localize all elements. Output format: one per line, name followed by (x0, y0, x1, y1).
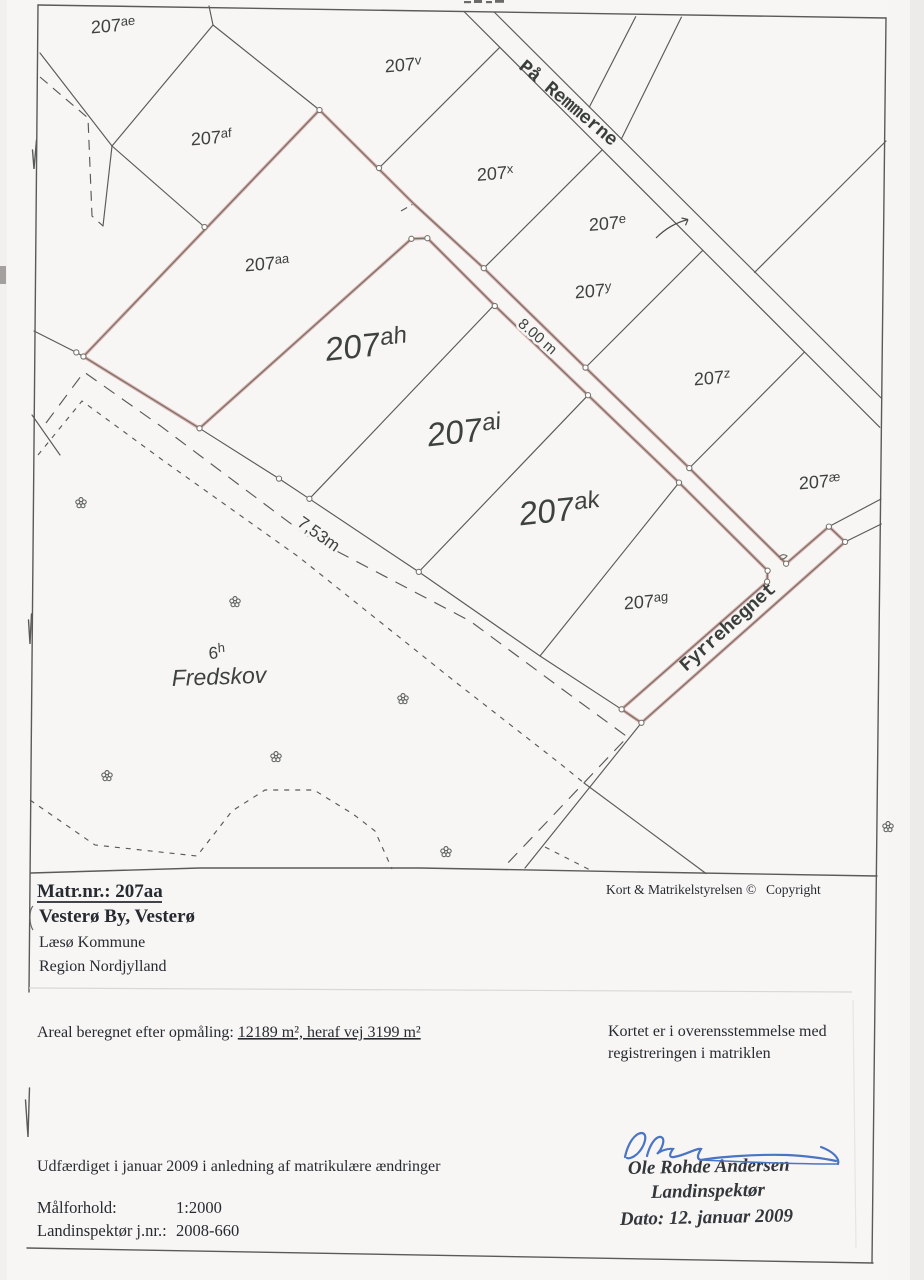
svg-text:Landinspektør: Landinspektør (650, 1180, 766, 1203)
svg-text:Fredskov: Fredskov (171, 662, 268, 691)
svg-text:Copyright: Copyright (766, 882, 821, 897)
svg-text:registreringen i matriklen: registreringen i matriklen (608, 1045, 771, 1062)
svg-text:Kortet er i overensstemmelse m: Kortet er i overensstemmelse med (608, 1023, 827, 1040)
svg-text:Læsø Kommune: Læsø Kommune (39, 934, 145, 951)
svg-text:Matr.nr.: 207aa: Matr.nr.: 207aa (37, 881, 163, 902)
svg-text:Udfærdiget i januar 2009 i anl: Udfærdiget i januar 2009 i anledning af … (37, 1158, 441, 1175)
svg-text:Vesterø By, Vesterø: Vesterø By, Vesterø (39, 906, 195, 927)
svg-text:Kort & Matrikelstyrelsen: Kort & Matrikelstyrelsen (606, 882, 743, 897)
svg-text:©: © (746, 882, 756, 897)
svg-text:Landinspektør j.nr.:: Landinspektør j.nr.: (37, 1221, 167, 1240)
svg-text:Region Nordjylland: Region Nordjylland (39, 958, 167, 975)
svg-text:Målforhold:: Målforhold: (37, 1198, 117, 1217)
svg-text:2008-660: 2008-660 (176, 1221, 239, 1240)
svg-text:1:2000: 1:2000 (176, 1198, 222, 1217)
svg-text:Areal beregnet efter opmåling:: Areal beregnet efter opmåling: 12189 m²,… (37, 1024, 421, 1041)
svg-text:Dato: 12. januar 2009: Dato: 12. januar 2009 (619, 1205, 794, 1230)
